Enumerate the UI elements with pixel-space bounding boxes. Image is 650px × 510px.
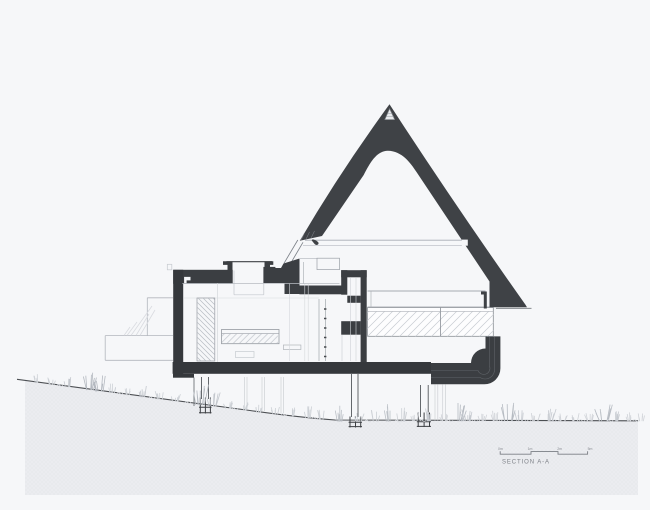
svg-text:0m: 0m (498, 447, 503, 451)
svg-text:2m: 2m (557, 447, 562, 451)
svg-text:SECTION A-A: SECTION A-A (502, 460, 550, 466)
svg-text:1m: 1m (528, 447, 533, 451)
svg-text:5m: 5m (588, 447, 593, 451)
